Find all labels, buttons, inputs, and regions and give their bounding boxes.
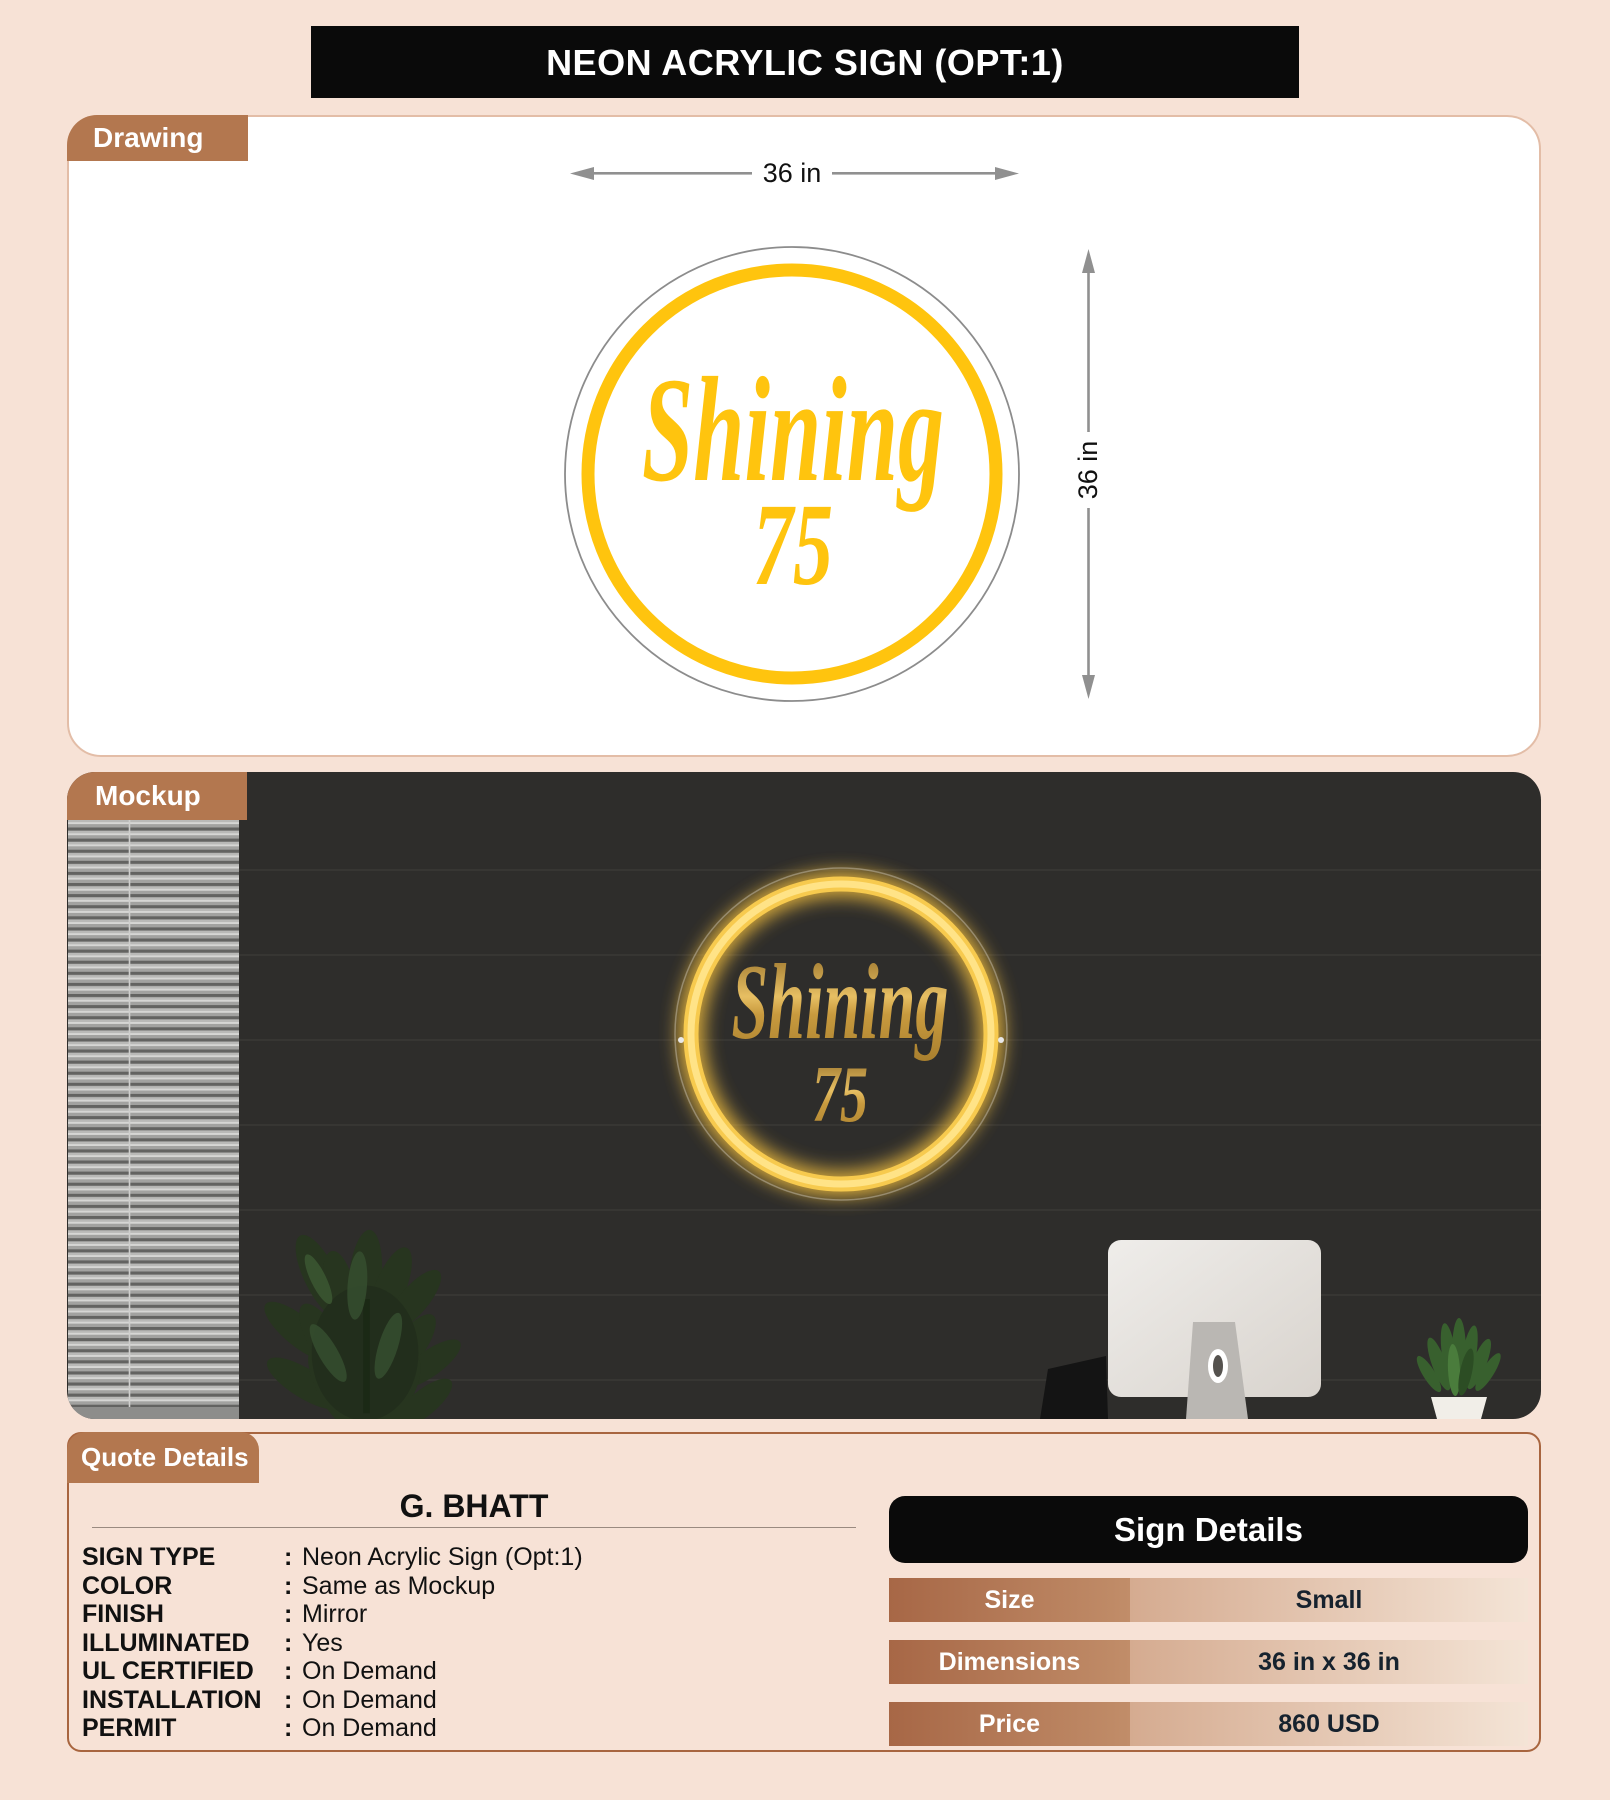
svg-text:75: 75 bbox=[753, 479, 833, 610]
svg-text:36 in: 36 in bbox=[1073, 441, 1103, 500]
svg-text:Shining: Shining bbox=[732, 943, 949, 1062]
svg-text:75: 75 bbox=[812, 1051, 868, 1139]
svg-text:36 in: 36 in bbox=[763, 158, 822, 188]
